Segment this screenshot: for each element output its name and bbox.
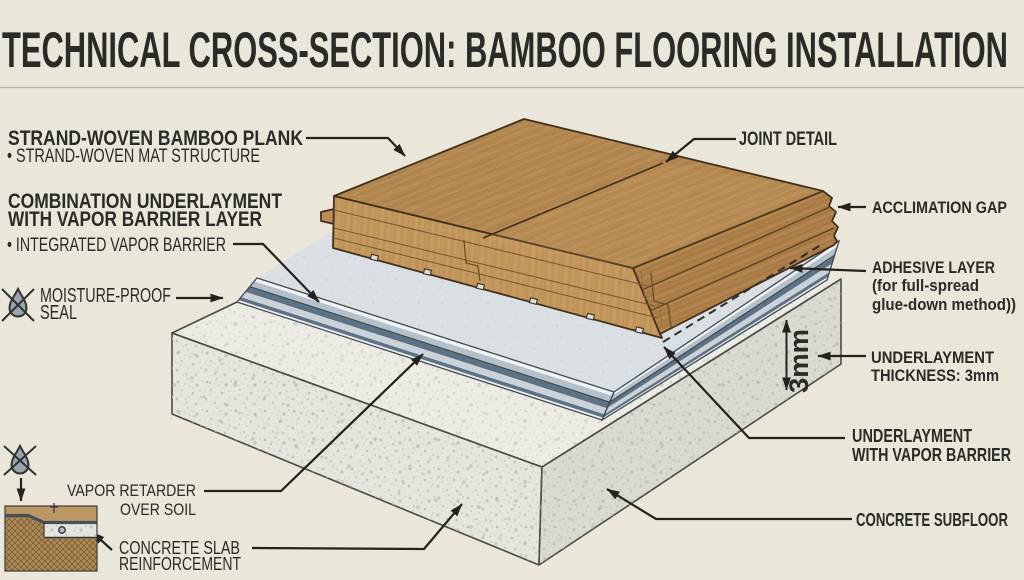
svg-text:CONCRETE SUBFLOOR: CONCRETE SUBFLOOR [856, 510, 1008, 530]
svg-text:UNDERLAYMENT: UNDERLAYMENT [871, 348, 995, 367]
svg-text:UNDERLAYMENT: UNDERLAYMENT [852, 426, 972, 446]
svg-text:JOINT DETAIL: JOINT DETAIL [739, 129, 837, 150]
svg-text:glue-down method)): glue-down method)) [872, 295, 1016, 314]
svg-text:THICKNESS: 3mm: THICKNESS: 3mm [871, 366, 999, 385]
svg-text:WITH VAPOR BARRIER LAYER: WITH VAPOR BARRIER LAYER [8, 208, 262, 231]
svg-text:(for full-spread: (for full-spread [872, 276, 979, 295]
svg-text:SEAL: SEAL [40, 302, 77, 324]
svg-text:• STRAND-WOVEN MAT STRUCTURE: • STRAND-WOVEN MAT STRUCTURE [7, 145, 260, 167]
svg-text:3mm: 3mm [784, 329, 814, 393]
svg-text:ADHESIVE LAYER: ADHESIVE LAYER [872, 258, 995, 277]
svg-text:WITH VAPOR BARRIER: WITH VAPOR BARRIER [852, 445, 1011, 465]
svg-text:ACCLIMATION GAP: ACCLIMATION GAP [872, 199, 1007, 217]
svg-text:OVER SOIL: OVER SOIL [120, 501, 196, 519]
svg-text:REINFORCEMENT: REINFORCEMENT [119, 554, 241, 574]
svg-text:TECHNICAL CROSS-SECTION: BAMBO: TECHNICAL CROSS-SECTION: BAMBOO FLOORING… [2, 22, 1008, 78]
svg-text:• INTEGRATED VAPOR BARRIER: • INTEGRATED VAPOR BARRIER [7, 234, 226, 256]
svg-text:VAPOR RETARDER: VAPOR RETARDER [67, 482, 196, 500]
